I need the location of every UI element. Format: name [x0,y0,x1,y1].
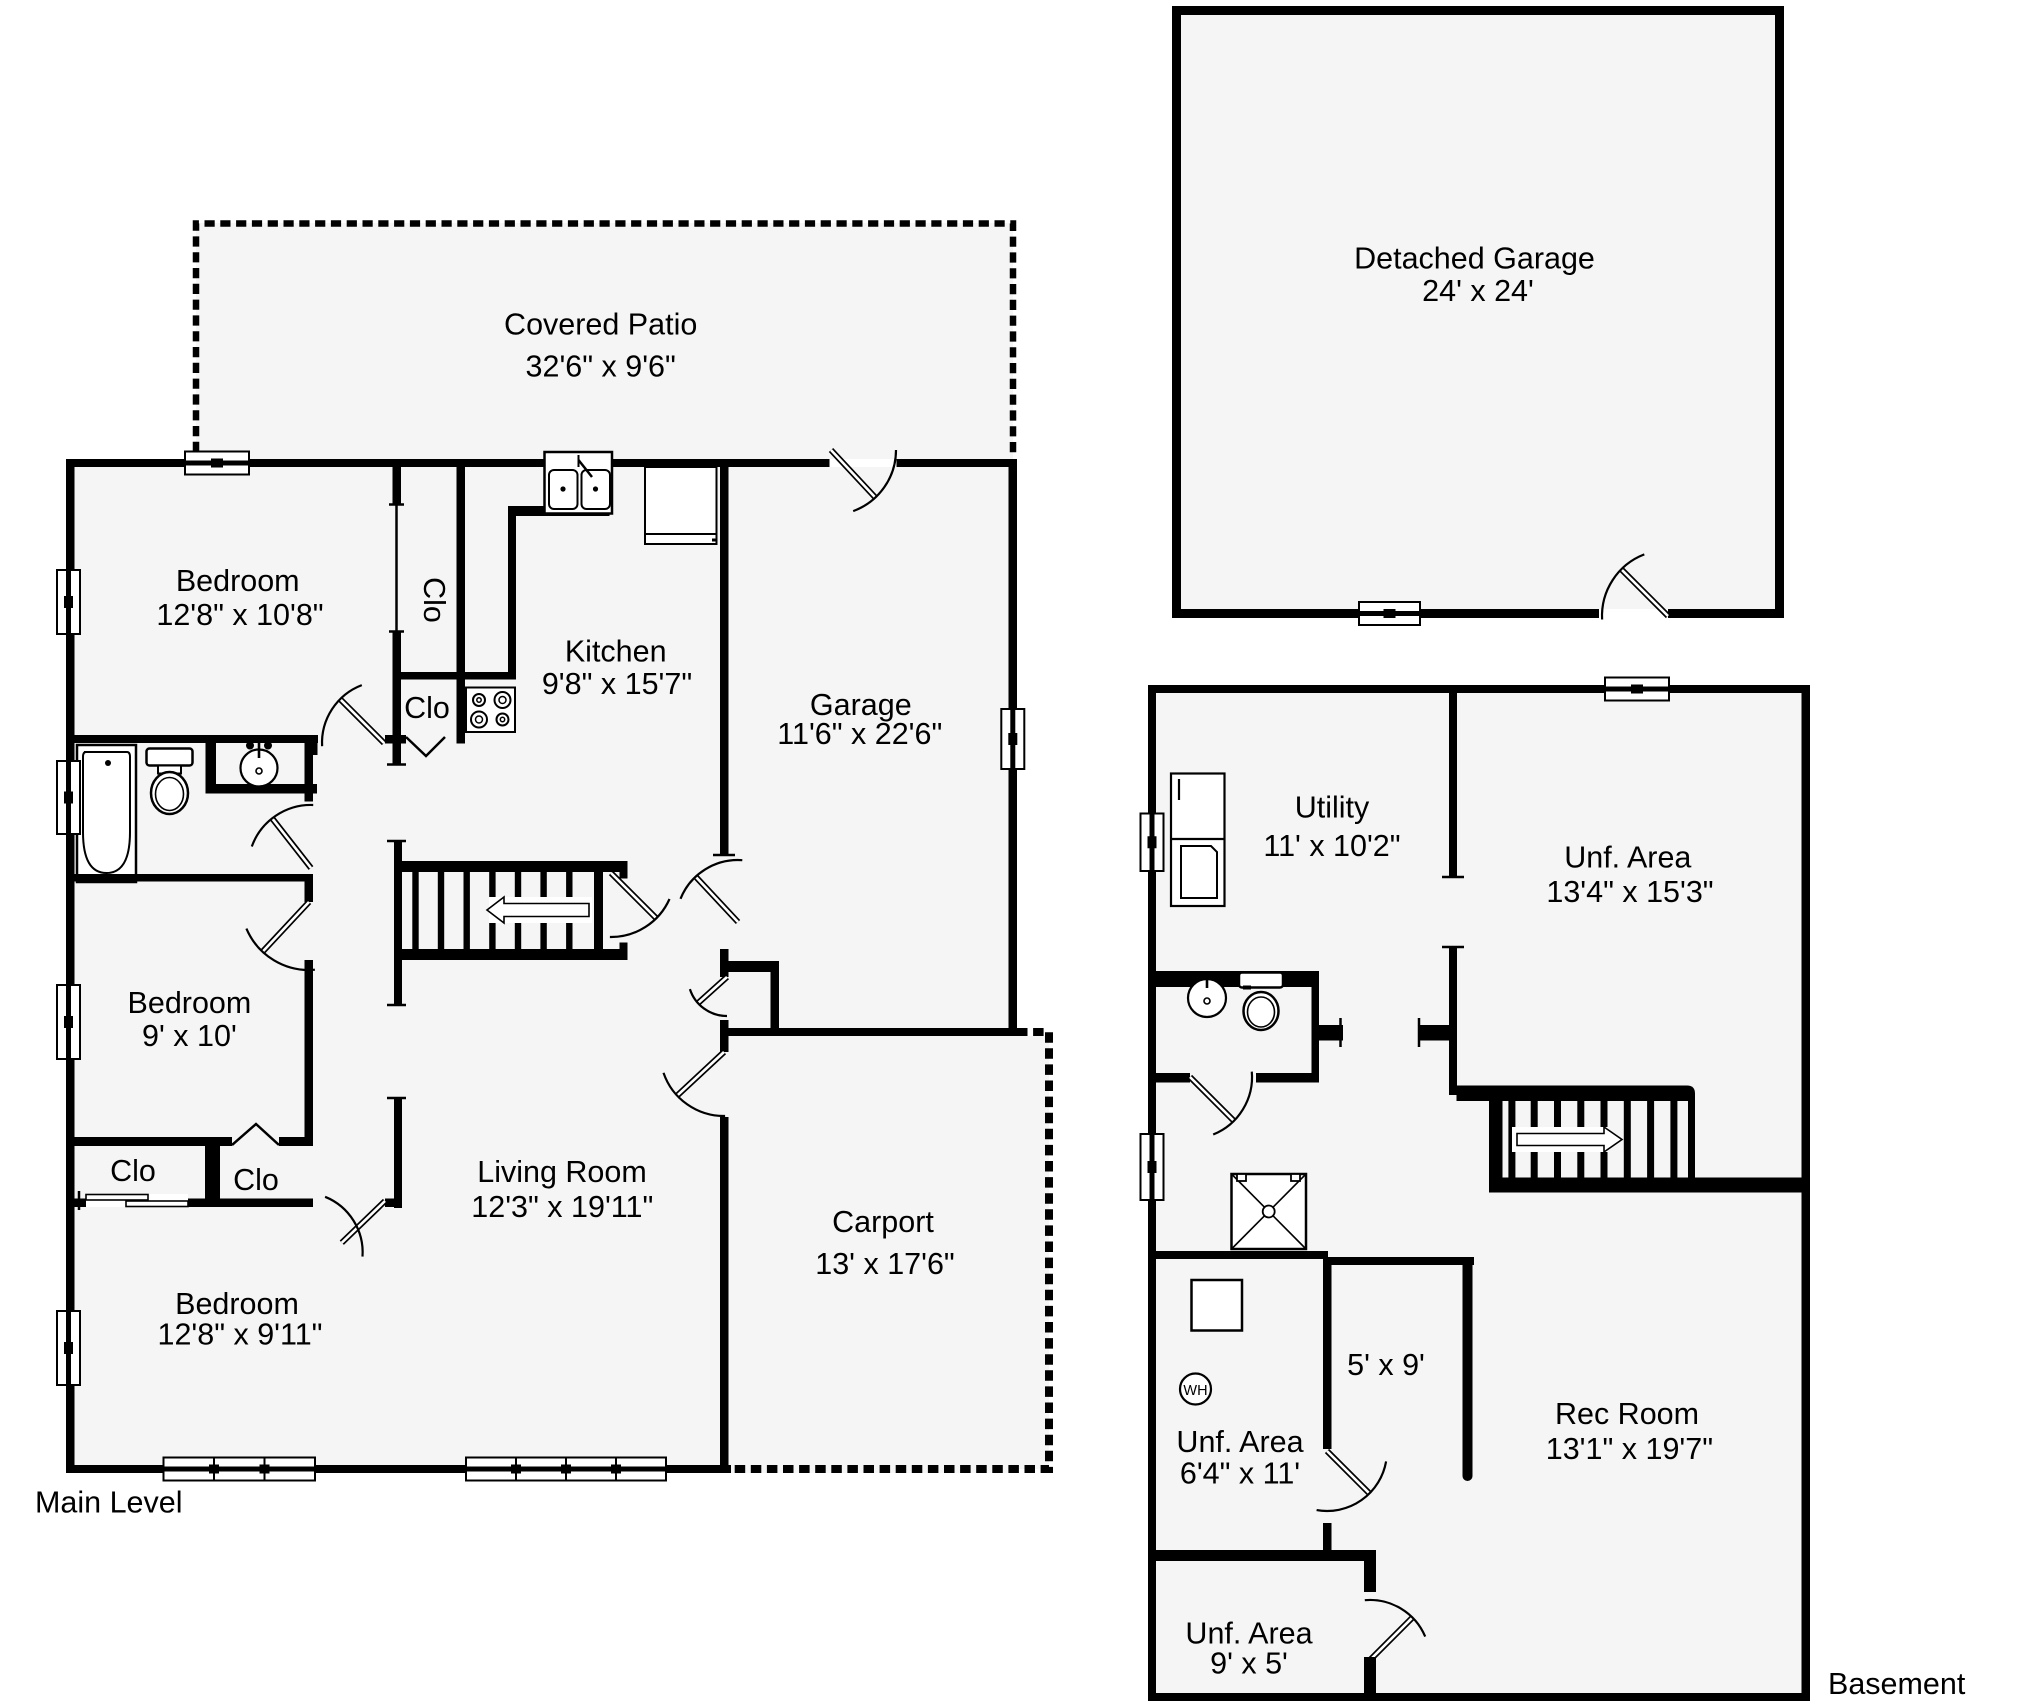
svg-text:32'6" x 9'6": 32'6" x 9'6" [526,349,676,383]
svg-text:12'3" x 19'11": 12'3" x 19'11" [471,1190,653,1224]
svg-text:Rec Room: Rec Room [1555,1397,1699,1431]
svg-text:5' x 9': 5' x 9' [1347,1348,1425,1382]
svg-text:9'8" x 15'7": 9'8" x 15'7" [542,667,692,701]
svg-text:12'8" x 9'11": 12'8" x 9'11" [157,1318,322,1352]
svg-text:Bedroom: Bedroom [175,1287,299,1321]
svg-text:9' x 5': 9' x 5' [1210,1647,1288,1681]
svg-text:Clo: Clo [233,1163,279,1197]
svg-text:12'8" x 10'8": 12'8" x 10'8" [156,598,323,632]
svg-text:13'4" x 15'3": 13'4" x 15'3" [1546,875,1713,909]
svg-text:11' x 10'2": 11' x 10'2" [1263,829,1400,863]
svg-text:Bedroom: Bedroom [128,986,252,1020]
svg-text:13' x 17'6": 13' x 17'6" [815,1247,954,1281]
svg-text:Clo: Clo [404,691,450,725]
svg-text:Clo: Clo [110,1154,156,1188]
svg-text:Living Room: Living Room [477,1155,647,1189]
svg-text:Utility: Utility [1295,790,1370,824]
svg-text:Unf. Area: Unf. Area [1176,1425,1303,1459]
svg-text:13'1" x 19'7": 13'1" x 19'7" [1546,1432,1713,1466]
svg-text:Main Level: Main Level [35,1486,183,1520]
svg-text:11'6" x 22'6": 11'6" x 22'6" [777,717,942,751]
svg-text:24' x 24': 24' x 24' [1422,274,1534,308]
svg-text:Carport: Carport [832,1205,934,1239]
svg-text:Covered Patio: Covered Patio [504,308,697,342]
svg-text:Bedroom: Bedroom [176,564,300,598]
svg-text:Detached Garage: Detached Garage [1354,242,1595,276]
svg-text:Unf. Area: Unf. Area [1564,841,1691,875]
svg-text:Clo: Clo [417,577,451,623]
svg-text:6'4" x 11': 6'4" x 11' [1180,1456,1300,1490]
svg-text:9' x 10': 9' x 10' [142,1019,237,1053]
svg-text:WH: WH [1183,1383,1207,1399]
svg-text:Unf. Area: Unf. Area [1185,1616,1312,1650]
svg-text:Kitchen: Kitchen [565,635,667,669]
svg-text:Basement: Basement [1828,1667,1966,1701]
